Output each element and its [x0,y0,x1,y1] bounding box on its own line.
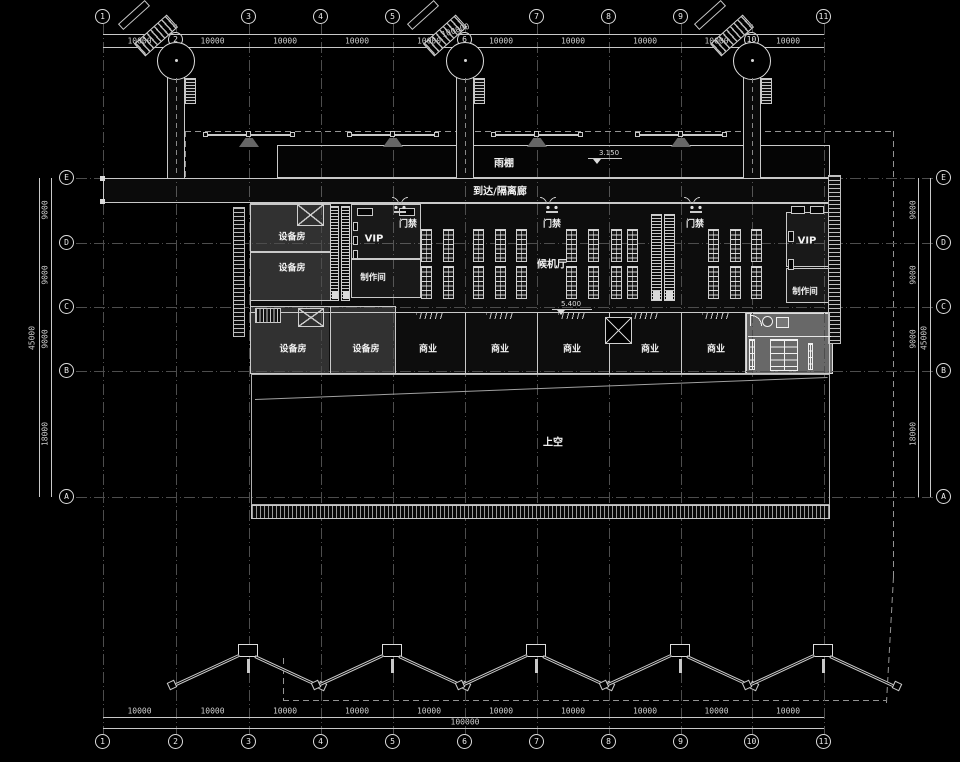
dim-line-right-2 [930,178,931,497]
tent-canopy-strut [317,654,384,687]
basin-icon [762,316,773,327]
dim-total-width-bottom: 100000 [451,718,480,727]
seating-row [421,229,432,262]
production-room-label: 制作间 [360,271,386,283]
seating-row [627,229,638,262]
dim-segment-top: 10000 [489,37,513,46]
dim-segment-bottom: 10000 [633,707,657,716]
equipment-room-label: 设备房 [278,230,305,243]
dim-line-top-1 [103,34,824,35]
seating-row [473,229,484,262]
tent-canopy-strut [829,655,896,688]
room-divider-wall [465,313,466,373]
seating-row [627,266,638,299]
dim-segment-left: 9000 [41,329,50,348]
truss-node [491,132,496,137]
grid-bubble-bottom: 9 [673,734,688,749]
grid-bubble-top: 1 [95,9,110,24]
shopfront-door-icon [631,312,659,319]
apron-boundary-bottom [283,700,886,701]
dim-segment-left: 9000 [41,265,50,284]
dim-segment-right: 9000 [909,200,918,219]
seating-row [611,266,622,299]
seating-row [566,229,577,262]
escalator-center [651,214,662,301]
grid-bubble-bottom: 3 [241,734,256,749]
grid-bubble-bottom: 5 [385,734,400,749]
tent-canopy-mast [247,659,250,673]
grid-line-vertical [103,24,104,734]
tent-canopy-strut [748,654,815,687]
tent-canopy-mast [535,659,538,673]
sofa-icon [791,206,805,214]
escalator-end [653,291,660,300]
grid-bubble-top: 5 [385,9,400,24]
dim-segment-top: 10000 [127,37,151,46]
tent-canopy-mast [391,659,394,673]
dim-segment-top: 10000 [776,37,800,46]
door-swing-icon [750,314,762,326]
elevator-shaft-icon [298,308,324,327]
commercial-label: 商业 [641,342,659,355]
truss-node [203,132,208,137]
dim-segment-top: 10000 [273,37,297,46]
waiting-hall-label: 候机厅 [537,256,567,271]
sofa-icon [357,208,373,216]
shopfront-door-icon [416,312,444,319]
apron-boundary-right [893,131,894,577]
truss-node [635,132,640,137]
escalator-left [330,206,339,301]
seating-row [751,266,762,299]
wall-end-marker [100,176,105,181]
seating-row [443,229,454,262]
tent-canopy-mast [822,659,825,673]
equipment-room-label: 设备房 [352,342,379,355]
dim-segment-bottom: 10000 [345,707,369,716]
seating-row [751,229,762,262]
tent-canopy-mast [679,659,682,673]
urinal-row-icon [808,343,813,370]
fixture-icon [788,259,794,270]
toilet-stalls-icon [770,339,798,371]
jet-bridge-walkway [118,0,150,30]
truss-support [527,138,547,147]
seating-row [443,266,454,299]
dim-segment-top: 10000 [417,37,441,46]
seating-row [473,266,484,299]
truss-node [246,131,251,137]
commercial-label: 商业 [419,342,437,355]
grid-bubble-bottom: 8 [601,734,616,749]
truss-node [347,132,352,137]
dim-segment-left: 18000 [41,422,50,446]
vip-label: VIP [798,236,817,247]
grid-bubble-top: 9 [673,9,688,24]
grid-bubble-top: 8 [601,9,616,24]
dim-segment-left: 9000 [41,200,50,219]
grid-bubble-bottom: 7 [529,734,544,749]
grid-bubble-bottom: 11 [816,734,831,749]
stairs-icon [474,78,485,104]
commercial-label: 商业 [707,342,725,355]
dim-total-height-left: 45000 [28,326,37,350]
grid-bubble-left: B [59,363,74,378]
dim-segment-bottom: 10000 [273,707,297,716]
room-divider-wall [537,313,538,373]
shopfront-door-icon [702,312,730,319]
seating-row [516,229,527,262]
dim-segment-top: 10000 [345,37,369,46]
jet-bridge-walkway [694,0,726,30]
rotunda-pivot [751,59,754,62]
grid-bubble-left: C [59,299,74,314]
truss-node [390,131,395,137]
grid-bubble-right: D [936,235,951,250]
dim-segment-bottom: 10000 [127,707,151,716]
dim-segment-bottom: 10000 [704,707,728,716]
urinal-row-icon [749,339,755,370]
dim-segment-bottom: 10000 [489,707,513,716]
seating-row [588,266,599,299]
truss-node [722,132,727,137]
gate-label: 门禁 [686,217,704,230]
grid-bubble-bottom: 4 [313,734,328,749]
elevation-value-hall: 5.400 [561,300,581,308]
grid-bubble-bottom: 1 [95,734,110,749]
grid-bubble-right: B [936,363,951,378]
escalator-end [332,291,338,299]
grid-bubble-left: A [59,489,74,504]
seating-row [495,266,506,299]
floor-plan-canvas: 100000 100000 45000 45000 雨棚 3.150 到达/隔离… [0,0,960,762]
tent-canopy-anchor [892,681,903,692]
seating-row [708,266,719,299]
fixture-icon [353,250,358,259]
counter-icon [776,317,789,328]
escalator-end [666,291,673,300]
grid-bubble-bottom: 2 [168,734,183,749]
rotunda-pivot [464,59,467,62]
turnstile-icon [544,205,560,214]
seating-row [516,266,527,299]
grid-bubble-bottom: 6 [457,734,472,749]
gate-label: 门禁 [399,217,417,230]
elevation-value-canopy: 3.150 [599,149,619,157]
apron-boundary-left [185,131,186,178]
commercial-label: 商业 [491,342,509,355]
dim-line-left-2 [51,178,52,497]
seating-row [611,229,622,262]
wall-end-marker [100,199,105,204]
grid-bubble-top: 7 [529,9,544,24]
seating-row [421,266,432,299]
truss-support [383,138,403,147]
dim-segment-bottom: 10000 [776,707,800,716]
truss-support [239,138,259,147]
turnstile-icon [392,205,408,214]
jet-bridge-centerline [752,78,753,176]
grid-bubble-bottom: 10 [744,734,759,749]
grid-bubble-right: A [936,489,951,504]
room-divider-wall [681,313,682,373]
restroom-divider [748,336,831,337]
room-divider-wall [330,307,331,373]
truss-node [290,132,295,137]
rotunda-pivot [175,59,178,62]
seating-row [566,266,577,299]
shopfront-door-icon [486,312,514,319]
jet-bridge-centerline [176,78,177,176]
dim-segment-top: 10000 [561,37,585,46]
void-above-label: 上空 [543,434,563,449]
dim-segment-top: 10000 [633,37,657,46]
escalator-center [664,214,675,301]
double-door-icon [540,196,556,204]
grid-bubble-top: 11 [816,9,831,24]
grid-bubble-right: E [936,170,951,185]
dim-segment-top: 10000 [704,37,728,46]
equipment-room-label: 设备房 [278,261,305,274]
apron-boundary-bottom-left [283,658,284,700]
dim-segment-right: 18000 [909,422,918,446]
room-divider-wall [745,313,746,373]
grid-bubble-top: 4 [313,9,328,24]
tent-canopy-strut [605,654,672,687]
sofa-icon [810,206,824,214]
louver-strip-left [233,207,245,337]
production-room-label: 制作间 [792,285,818,297]
seating-row [708,229,719,262]
arrival-corridor-label: 到达/隔离廊 [473,183,527,198]
elevator-shaft-icon [297,204,324,226]
grid-bubble-left: E [59,170,74,185]
dim-segment-top: 10000 [200,37,224,46]
elevation-mark-triangle-canopy [593,159,601,164]
dim-segment-bottom: 10000 [417,707,441,716]
fixture-icon [353,236,358,245]
double-door-icon [684,196,700,204]
vip-label: VIP [365,234,384,245]
canopy-label: 雨棚 [494,155,514,170]
jet-bridge-centerline [465,78,466,176]
truss-support [671,138,691,147]
dim-segment-bottom: 10000 [561,707,585,716]
dim-segment-right: 9000 [909,329,918,348]
seating-row [730,266,741,299]
fixture-icon [788,231,794,242]
jet-bridge-walkway [407,0,439,30]
grid-bubble-right: C [936,299,951,314]
equipment-room-label: 设备房 [279,342,306,355]
stairs-icon [185,78,196,104]
void-outline [251,374,830,505]
truss-node [434,132,439,137]
seating-row [495,229,506,262]
gate-label: 门禁 [543,217,561,230]
grid-bubble-top: 3 [241,9,256,24]
stairs-icon [255,308,281,323]
elevator-shaft-icon [605,317,632,344]
truss-node [534,131,539,137]
commercial-label: 商业 [563,342,581,355]
facade-hatch-strip [251,505,830,519]
truss-node [678,131,683,137]
dim-total-height-right: 45000 [920,326,929,350]
fixture-icon [353,222,358,231]
dim-segment-right: 9000 [909,265,918,284]
dim-segment-bottom: 10000 [200,707,224,716]
seating-row [588,229,599,262]
turnstile-icon [688,205,704,214]
double-door-icon [392,196,408,204]
escalator-left [341,206,350,301]
escalator-end [343,291,349,299]
tent-canopy-strut [173,654,240,687]
equipment-room-2 [250,252,331,301]
arrival-corridor [103,178,830,203]
truss-node [578,132,583,137]
stairs-icon [761,78,772,104]
seating-row [730,229,741,262]
dim-line-bottom-2 [103,728,824,729]
tent-canopy-strut [461,654,528,687]
shopfront-door-icon [558,312,586,319]
grid-bubble-left: D [59,235,74,250]
